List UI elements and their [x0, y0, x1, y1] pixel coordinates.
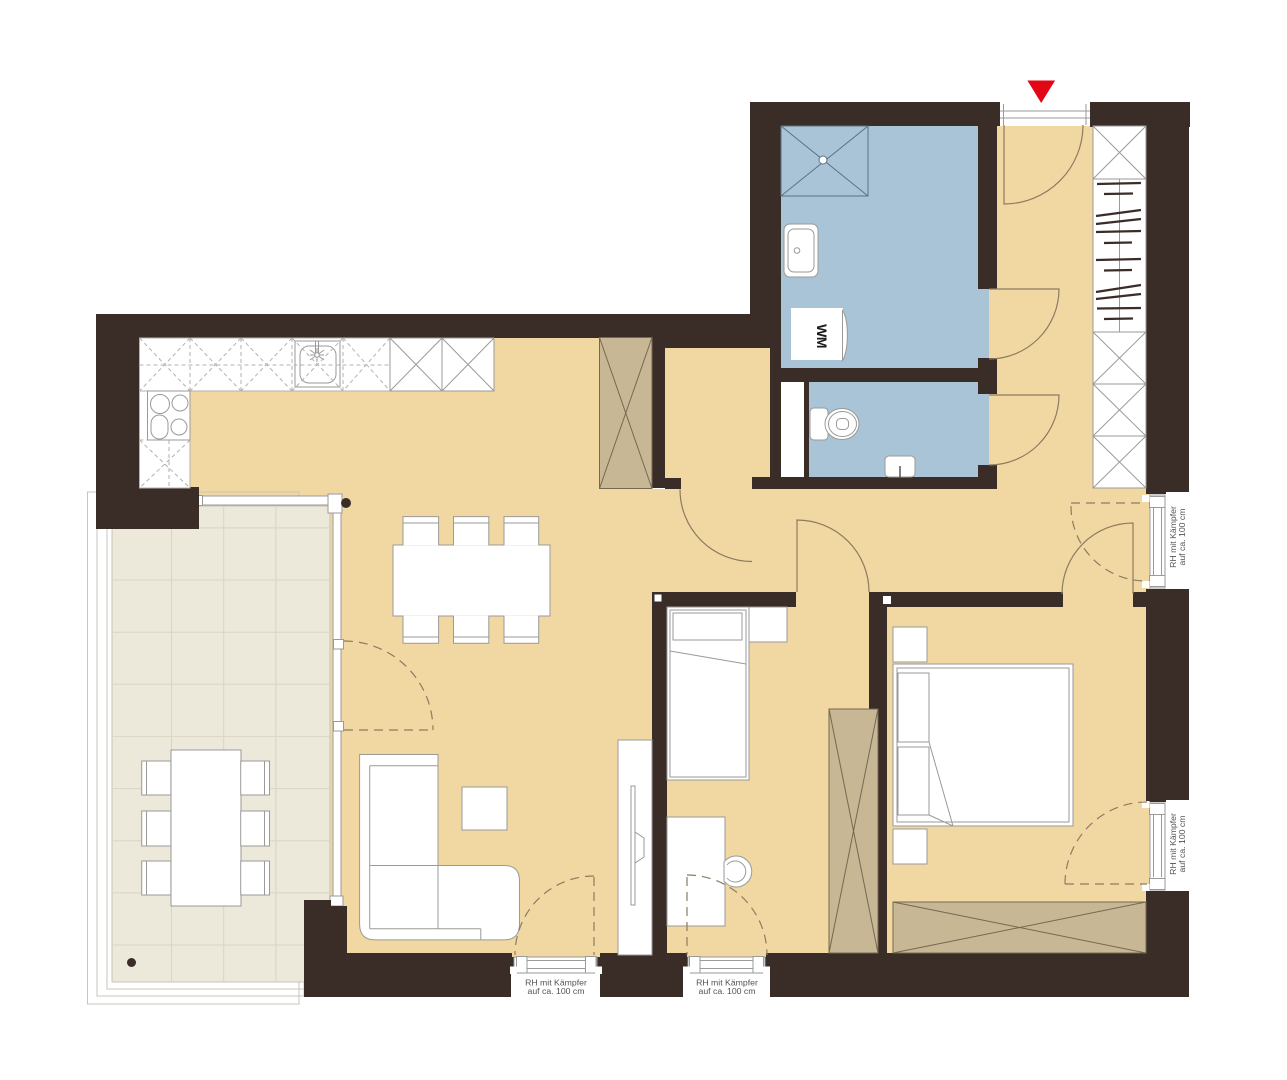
svg-text:auf ca. 100 cm: auf ca. 100 cm	[1177, 816, 1187, 873]
svg-text:WM: WM	[814, 324, 830, 348]
svg-text:auf ca. 100 cm: auf ca. 100 cm	[1177, 509, 1187, 566]
svg-text:auf ca. 100 cm: auf ca. 100 cm	[528, 986, 585, 996]
svg-text:auf ca. 100 cm: auf ca. 100 cm	[699, 986, 756, 996]
